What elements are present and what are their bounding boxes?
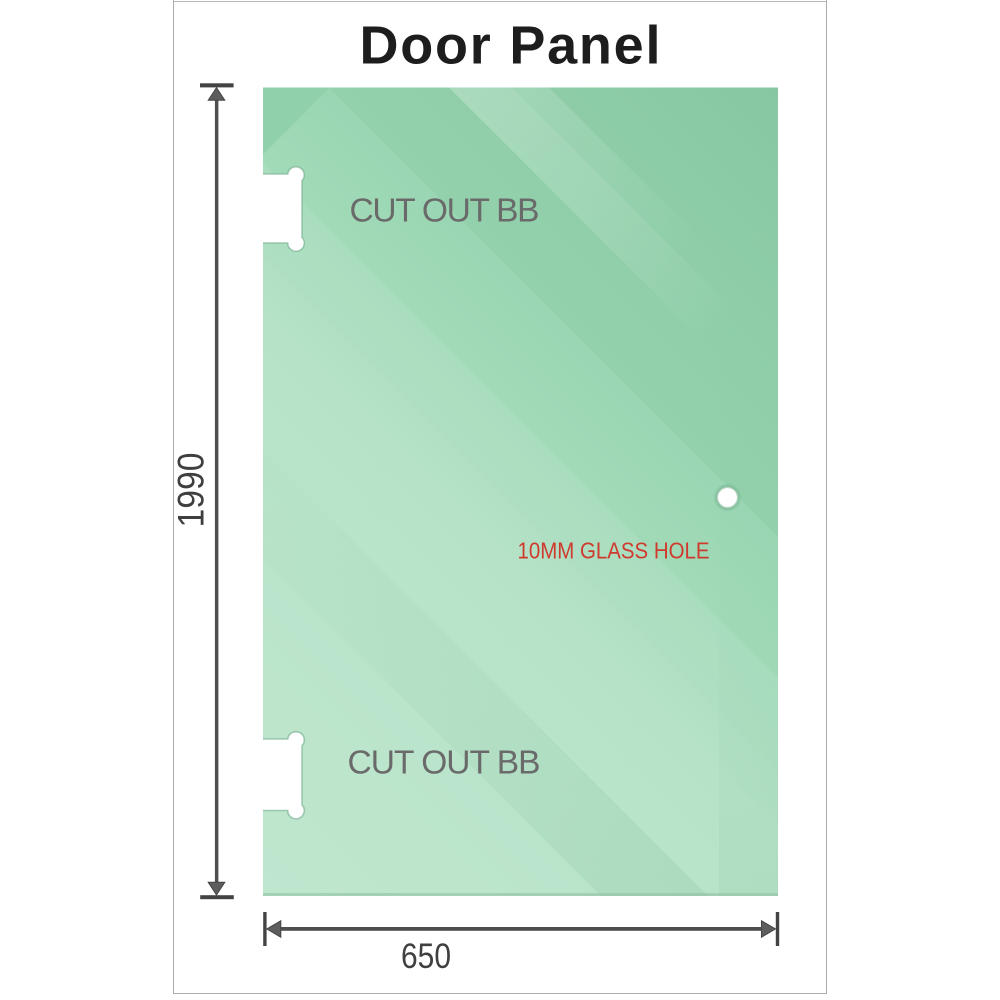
svg-text:CUT OUT BB: CUT OUT BB bbox=[348, 745, 541, 782]
svg-text:10MM GLASS HOLE: 10MM GLASS HOLE bbox=[518, 538, 710, 564]
svg-text:650: 650 bbox=[401, 936, 451, 976]
svg-text:CUT OUT BB: CUT OUT BB bbox=[350, 193, 540, 230]
svg-text:1990: 1990 bbox=[171, 453, 212, 528]
svg-text:Door Panel: Door Panel bbox=[360, 16, 661, 76]
